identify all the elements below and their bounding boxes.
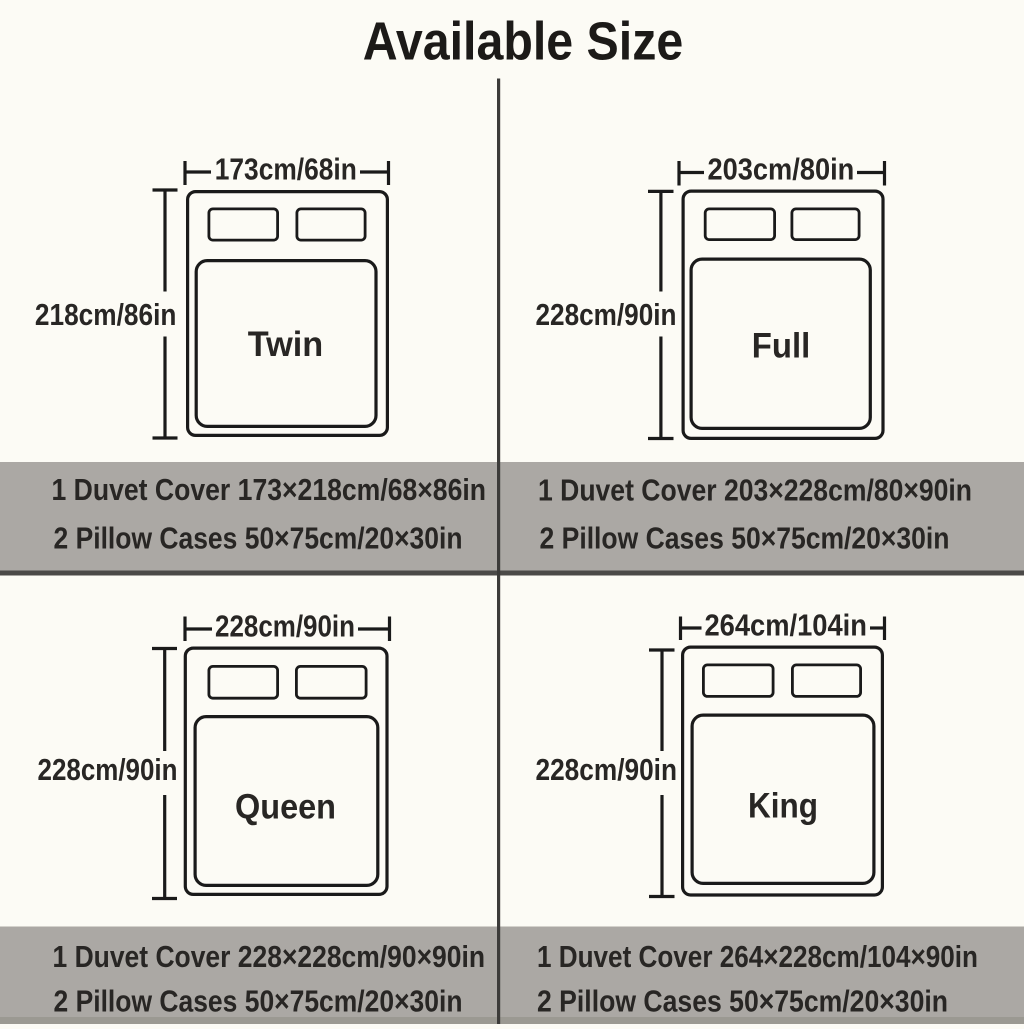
svg-text:173cm/68in: 173cm/68in xyxy=(215,152,357,187)
svg-text:2 Pillow Cases 50×75cm/20×30in: 2 Pillow Cases 50×75cm/20×30in xyxy=(54,984,463,1019)
svg-text:1 Duvet Cover 203×228cm/80×90i: 1 Duvet Cover 203×228cm/80×90in xyxy=(538,473,972,508)
svg-text:2 Pillow Cases 50×75cm/20×30in: 2 Pillow Cases 50×75cm/20×30in xyxy=(537,984,948,1019)
svg-text:203cm/80in: 203cm/80in xyxy=(708,152,855,187)
svg-text:228cm/90in: 228cm/90in xyxy=(536,752,678,787)
svg-text:1 Duvet Cover 173×218cm/68×86i: 1 Duvet Cover 173×218cm/68×86in xyxy=(52,472,487,507)
svg-text:2 Pillow Cases 50×75cm/20×30in: 2 Pillow Cases 50×75cm/20×30in xyxy=(54,521,463,556)
svg-text:228cm/90in: 228cm/90in xyxy=(215,609,355,644)
svg-text:Available Size: Available Size xyxy=(363,12,684,72)
svg-text:264cm/104in: 264cm/104in xyxy=(704,608,867,643)
svg-text:1 Duvet Cover 264×228cm/104×90: 1 Duvet Cover 264×228cm/104×90in xyxy=(537,939,978,974)
svg-text:218cm/86in: 218cm/86in xyxy=(35,297,177,332)
svg-text:King: King xyxy=(748,786,818,826)
svg-text:228cm/90in: 228cm/90in xyxy=(536,297,677,332)
svg-text:Full: Full xyxy=(752,326,811,366)
svg-text:228cm/90in: 228cm/90in xyxy=(38,752,178,787)
svg-text:2 Pillow Cases 50×75cm/20×30in: 2 Pillow Cases 50×75cm/20×30in xyxy=(540,521,950,556)
svg-text:Queen: Queen xyxy=(235,787,336,827)
svg-text:1 Duvet Cover 228×228cm/90×90i: 1 Duvet Cover 228×228cm/90×90in xyxy=(53,939,486,974)
svg-text:Twin: Twin xyxy=(248,324,324,364)
